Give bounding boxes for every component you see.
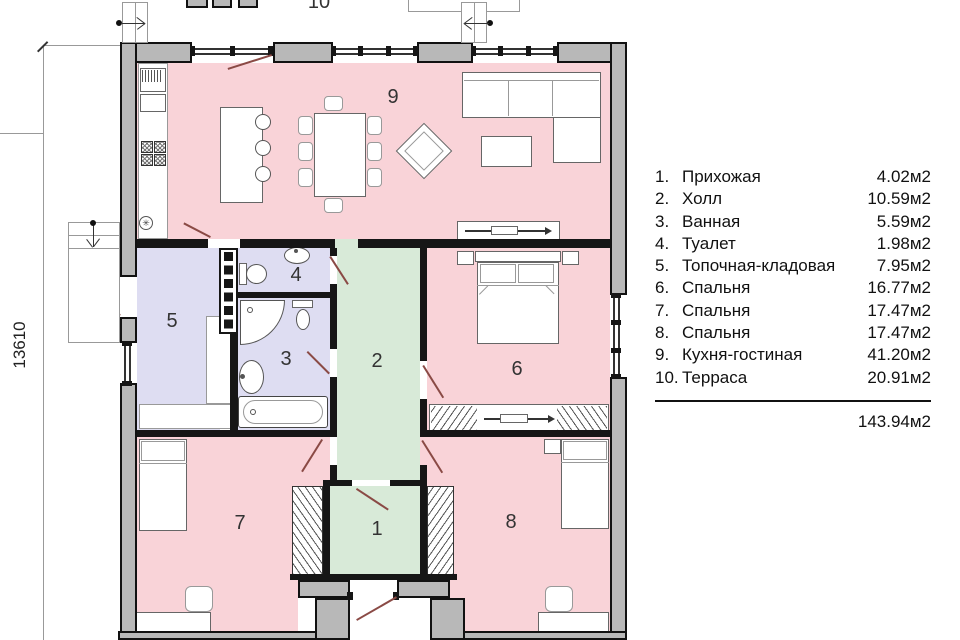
legend-num: 10. [655,367,682,389]
shelf [544,439,561,454]
dining-chair [367,116,382,135]
storage-counter [139,404,233,429]
room-label-6: 6 [505,358,529,381]
stool [255,140,271,156]
entry-arrow-dot [90,220,96,226]
bed-headboard [475,251,561,262]
legend-row: 4.Туалет1.98м2 [655,233,931,255]
window-mullion [190,46,195,56]
legend-num: 1. [655,166,682,188]
dimension-ext-line [43,45,120,46]
legend-name: Спальня [682,277,867,299]
legend-row: 7.Спальня17.47м2 [655,300,931,322]
window-line [473,48,557,50]
legend-name: Спальня [682,322,867,344]
wardrobe-hangers [557,406,607,431]
dimension-ext-line [0,133,43,134]
dining-table [314,113,366,197]
closet-bedroom8 [427,486,454,576]
wall [330,248,337,256]
legend-area: 17.47м2 [867,322,931,344]
wall [330,377,337,437]
drawer [500,414,528,423]
legend-row: 5.Топочная-кладовая7.95м2 [655,255,931,277]
sofa-backrest-line [464,80,599,81]
window-line [129,343,131,383]
window-line [333,48,417,50]
wall [237,292,330,298]
stool [255,166,271,182]
window-line [124,343,126,383]
pillow [480,264,516,283]
legend-name: Прихожая [682,166,877,188]
wall [330,284,337,349]
wall-left [120,317,137,343]
coffee-table [481,136,532,167]
legend-row: 9.Кухня-гостиная41.20м2 [655,344,931,366]
legend-num: 2. [655,188,682,210]
wall [240,239,335,248]
blanket-line [139,463,187,464]
room-label-3: 3 [274,348,298,371]
oven [140,94,166,112]
legend-row: 8.Спальня17.47м2 [655,322,931,344]
passage-floor [335,239,360,248]
stool [255,114,271,130]
fridge-coil [142,70,163,82]
porch-wall [430,598,465,640]
wall [323,486,330,576]
wall-left [120,42,137,277]
dimension-value: 13610 [10,305,30,385]
porch-wall [315,598,350,640]
vent-shaft [219,248,238,334]
blanket-line [561,462,609,463]
wall [231,430,330,437]
legend-name: Спальня [682,300,867,322]
legend-row: 6.Спальня16.77м2 [655,277,931,299]
legend-area: 10.59м2 [867,188,931,210]
downpipe-arrow [465,23,489,24]
legend-num: 3. [655,211,682,233]
legend-row: 3.Ванная5.59м2 [655,211,931,233]
pillow [518,264,554,283]
legend-area: 7.95м2 [877,255,931,277]
sofa-cushion-line [508,81,509,116]
window-mullion [611,374,621,379]
window-mullion [611,293,621,298]
window-mullion [122,381,132,386]
nightstand [562,251,579,265]
console-drawer [491,226,518,235]
dining-chair [367,168,382,187]
room-label-9: 9 [381,86,405,109]
desk-chair [185,586,213,612]
legend-name: Кухня-гостиная [682,344,867,366]
wall [230,334,238,430]
window-mullion [526,46,531,56]
dining-chair [298,116,313,135]
pillow [141,441,185,461]
room-legend: 1.Прихожая4.02м2 2.Холл10.59м2 3.Ванная5… [655,166,931,433]
room-label-1: 1 [365,518,389,541]
window-mullion [331,46,336,56]
legend-name: Топочная-кладовая [682,255,877,277]
room-label-10: 10 [302,0,336,14]
stove-burner [141,141,153,153]
window-mullion [471,46,476,56]
wall [137,239,208,248]
wall [420,465,427,480]
legend-num: 6. [655,277,682,299]
dining-chair [298,168,313,187]
window-mullion [122,341,132,346]
stove-burner [154,154,166,166]
porch-step-line [68,248,120,249]
legend-area: 4.02м2 [877,166,931,188]
terrace-furniture [212,0,232,8]
legend-area: 17.47м2 [867,300,931,322]
legend-row: 10.Терраса20.91м2 [655,367,931,389]
sofa [462,72,601,118]
window-mullion [230,46,235,56]
desk [538,612,609,633]
room-label-4: 4 [284,264,308,287]
drawer-arrow-head [548,415,555,423]
legend-row: 2.Холл10.59м2 [655,188,931,210]
console-arrow-head [545,227,552,235]
dining-chair [324,96,343,111]
window-mullion [611,320,621,325]
door-jamb [347,592,353,600]
floor-plan: ✳ [0,0,960,640]
legend-area: 16.77м2 [867,277,931,299]
wall-bottom [463,631,627,640]
wall-pier [417,42,473,63]
terrace-furniture [238,0,258,8]
room-label-8: 8 [499,511,523,534]
bathtub-drain [250,409,256,415]
legend-area: 1.98м2 [877,233,931,255]
sink-tap [294,249,298,253]
legend-name: Ванная [682,211,877,233]
legend-num: 5. [655,255,682,277]
nightstand [457,251,474,265]
legend-total: 143.94м2 [655,411,931,433]
stove-burner [154,141,166,153]
downpipe-arrow [121,23,145,24]
wall [137,430,231,437]
wall [420,430,610,437]
sofa-cushion-line [552,81,553,116]
pillow [563,441,607,460]
terrace-furniture [186,0,208,8]
legend-area: 5.59м2 [877,211,931,233]
room-label-2: 2 [365,350,389,373]
room-label-5: 5 [160,310,184,333]
legend-name: Терраса [682,367,867,389]
room-label-7: 7 [228,512,252,535]
wall-right [610,42,627,295]
sofa-chaise [553,117,601,163]
legend-num: 7. [655,300,682,322]
legend-num: 9. [655,344,682,366]
legend-name: Туалет [682,233,877,255]
dining-chair [324,198,343,213]
porch-wall [397,580,450,598]
wall [420,486,427,576]
legend-divider [655,400,931,402]
wall [358,239,610,248]
window-mullion [611,348,621,353]
dining-chair [298,142,313,161]
desk [127,612,211,633]
toilet-bowl [246,264,267,284]
toilet-tank [292,300,313,308]
porch-wall [298,580,350,598]
window-line [473,53,557,55]
wall-pier [273,42,333,63]
window-mullion [386,46,391,56]
window-line [613,295,615,377]
legend-area: 20.91м2 [867,367,931,389]
wall-bottom [118,631,317,640]
dimension-line [43,45,44,640]
window-mullion [498,46,503,56]
sink-tap [240,374,245,379]
legend-row: 1.Прихожая4.02м2 [655,166,931,188]
window-line [333,53,417,55]
side-porch [68,222,120,343]
legend-name: Холл [682,188,867,210]
toilet-bowl [296,309,310,330]
door-front-entrance [356,596,397,621]
window-line [618,295,620,377]
shower-drain [247,307,253,313]
window-mullion [413,46,418,56]
wall-left [120,383,137,640]
dining-chair [367,142,382,161]
wall [420,248,427,361]
legend-num: 4. [655,233,682,255]
wardrobe-hangers [431,406,477,431]
desk-chair [545,586,573,612]
porch-step-line [68,235,120,236]
wall-right [610,377,627,640]
legend-num: 8. [655,322,682,344]
window-mullion [358,46,363,56]
window-mullion [553,46,558,56]
vent-shaft-cells [224,252,233,330]
stove-burner [141,154,153,166]
floor-drain-icon: ✳ [139,216,153,230]
legend-area: 41.20м2 [867,344,931,366]
wall [330,465,337,480]
closet-bedroom7 [292,486,323,576]
